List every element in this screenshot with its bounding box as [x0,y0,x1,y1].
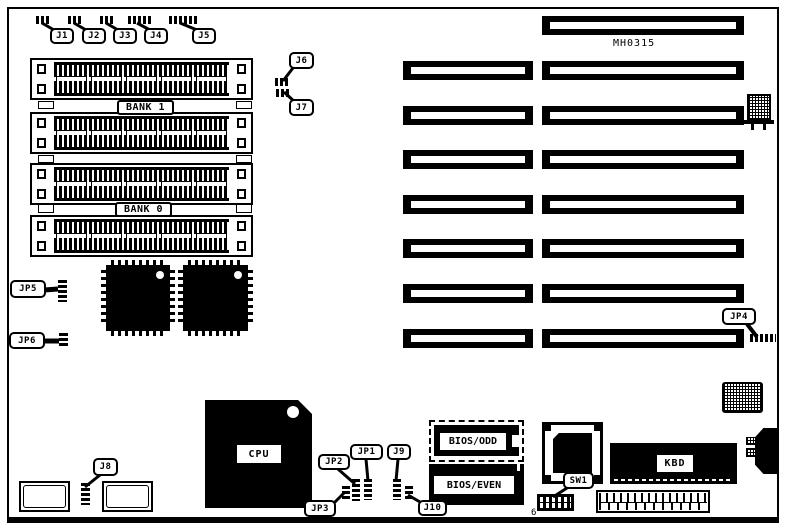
callout-j1: J1 [50,28,74,44]
callout-j8: J8 [93,458,118,476]
callout-jp4: JP4 [722,308,756,325]
jumper-j7-pins [276,89,291,97]
callout-j5-label: J5 [198,31,210,41]
slot-opening [550,156,736,163]
chip-notch [512,435,519,447]
bank1-label-box: BANK 1 [117,100,174,115]
simm-latch [237,84,246,94]
cpu-label: CPU [248,449,269,460]
slot-opening [411,67,525,74]
isa-slot [542,106,744,125]
kbd-chip: KBD [610,443,737,484]
pin1-dot [156,271,164,279]
callout-jp1: JP1 [350,444,383,460]
spare-pad-left [19,481,70,512]
slot-opening [550,22,736,29]
slot-opening [550,335,736,342]
callout-j7-label: J7 [296,103,308,113]
qfp-chip-1 [106,265,170,331]
callout-jp4-label: JP4 [730,312,748,322]
pad-inner-outline [106,485,149,508]
simm-mount-tab [38,204,54,213]
jumper-jp6-pins [59,333,68,348]
header-hole-row [599,502,707,510]
simm-latch [237,118,246,128]
jumper-jp3-pins [342,486,350,501]
switch-row [540,503,571,508]
header-pad-row [599,493,707,502]
simm-mount-tab [236,155,252,163]
isa-slot [542,239,744,258]
simm-mount-tab [38,155,54,163]
isa-slot [542,195,744,214]
slot-opening [411,112,525,119]
isa-slot [542,329,744,348]
callout-j2-label: J2 [88,31,100,41]
socket-corner [544,475,551,482]
qfp-pins-bottom [188,331,243,336]
bios-even-label: BIOS/EVEN [447,480,501,491]
jumper-j4-pins [128,16,153,24]
slot-opening [411,201,525,208]
bios-odd-socket: BIOS/ODD [429,420,524,462]
qfp-pins-right [248,270,253,326]
simm-latch [37,241,46,251]
slot-opening [550,112,736,119]
callout-j6-label: J6 [296,56,308,66]
simm-latch [237,241,246,251]
jumper-jp1-pins [364,479,372,500]
callout-jp2: JP2 [318,454,350,470]
callout-j6: J6 [289,52,314,69]
callout-j7: J7 [289,99,314,116]
slot-opening [411,245,525,252]
qfp-pins-top [111,260,165,265]
simm-mount-tab [38,101,54,109]
motherboard-diagram: J1 J2 J3 J4 J5 J6 J7 [0,0,791,532]
callout-j5: J5 [192,28,216,44]
simm-socket-1 [30,58,253,100]
slot-opening [411,156,525,163]
qfp-chip-2 [183,265,248,331]
bios-odd-label: BIOS/ODD [449,436,497,447]
callout-j10: J10 [418,500,447,516]
simm-mount-tab [236,101,252,109]
isa-slot-extension [403,150,533,169]
isa-slot [542,16,744,35]
callout-j9: J9 [387,444,411,460]
callout-jp3: JP3 [304,500,336,517]
callout-jp6: JP6 [9,332,45,349]
simm-contacts [54,219,229,234]
spare-pad-right [102,481,153,512]
qfp-pins-bottom [111,331,165,336]
simm-latch [237,138,246,148]
jumper-j3-pins [100,16,113,24]
pad-inner-outline [23,485,66,508]
qfp-pins-left [178,270,183,326]
jumper-j5-pins [169,16,199,24]
cpu-label-plate: CPU [237,445,281,463]
cpu-chip: CPU [205,400,312,508]
simm-mount-tab [236,204,252,213]
jumper-j2-pins [68,16,81,24]
isa-slot [542,150,744,169]
simm-latch [37,169,46,179]
simm-contacts [54,238,229,253]
callout-j1-label: J1 [56,31,68,41]
simm-contacts [54,135,229,150]
socket-corner [544,424,551,431]
callout-sw1: SW1 [563,472,594,489]
pin1-dot [287,406,299,418]
simm-latch [237,189,246,199]
slot-opening [550,201,736,208]
simm-latch [37,84,46,94]
keyboard-din-connector [755,428,779,474]
sw1-position-count: 6 [531,508,537,518]
simm-contacts [54,167,229,182]
plcc-chip [553,433,592,473]
isa-slot-extension [403,106,533,125]
simm-contacts [54,116,229,131]
pin1-dot [234,271,242,279]
crystal-base [744,120,774,124]
bios-even-label-plate: BIOS/EVEN [434,476,514,494]
kbd-label: KBD [664,458,685,469]
simm-socket-3 [30,163,253,205]
callout-jp1-label: JP1 [358,447,376,457]
simm-latch [37,118,46,128]
simm-latch [37,221,46,231]
din-pad [746,448,756,457]
callout-j4-label: J4 [150,31,162,41]
isa-slot-extension [403,61,533,80]
callout-j10-label: J10 [424,503,442,513]
jumper-j1-pins [36,16,49,24]
din-pad [746,437,756,445]
bios-odd-label-plate: BIOS/ODD [440,433,506,450]
callout-j3: J3 [113,28,137,44]
isa-slot-extension [403,195,533,214]
switch-row [540,497,571,502]
socket-corner [594,424,601,431]
simm-latch [237,169,246,179]
isa-slot-extension [403,329,533,348]
callout-sw1-label: SW1 [570,476,588,486]
jumper-j9-pins [393,479,401,500]
callout-jp5: JP5 [10,280,46,298]
simm-contacts [54,186,229,201]
bios-even-chip: BIOS/EVEN [429,464,524,505]
callout-jp5-label: JP5 [19,284,37,294]
callout-jp2-label: JP2 [325,457,343,467]
callout-j2: J2 [82,28,106,44]
jumper-jp4-pins [750,334,776,342]
jumper-j8-pins [81,483,90,505]
bios-odd-chip: BIOS/ODD [434,425,519,456]
isa-slot [542,284,744,303]
jumper-jp5-pins [58,280,67,302]
bank1-label: BANK 1 [126,102,165,113]
callout-j9-label: J9 [393,447,405,457]
slot-opening [550,67,736,74]
callout-jp6-label: JP6 [18,336,36,346]
slot-opening [550,290,736,297]
part-number: MH0315 [613,38,655,49]
chip-pin-row [614,479,733,481]
crystal-oscillator-icon [747,94,771,121]
jumper-j6-pins [275,78,290,86]
bank0-label: BANK 0 [124,204,163,215]
slot-opening [550,245,736,252]
simm-socket-2 [30,112,253,154]
slot-opening [411,335,525,342]
dip-switch-sw1 [537,494,574,511]
kbd-label-plate: KBD [657,455,693,472]
slot-opening [411,290,525,297]
simm-latch [37,189,46,199]
bank0-label-box: BANK 0 [115,202,172,217]
chip-notch [517,464,520,471]
isa-slot [542,61,744,80]
callout-jp3-label: JP3 [311,504,329,514]
simm-contacts [54,62,229,77]
simm-contacts [54,81,229,96]
jumper-jp2-pins [352,479,360,501]
qfp-pins-left [101,270,106,326]
simm-socket-4 [30,215,253,257]
crystal-leg [751,124,754,130]
simm-latch [237,221,246,231]
clock-oscillator-icon [722,382,763,413]
callout-j8-label: J8 [100,462,112,472]
isa-slot-extension [403,284,533,303]
simm-latch [37,64,46,74]
qfp-pins-top [188,260,243,265]
simm-latch [37,138,46,148]
callout-j4: J4 [144,28,168,44]
simm-latch [237,64,246,74]
qfp-pins-right [170,270,175,326]
callout-j3-label: J3 [119,31,131,41]
jumper-j10-pins [405,486,413,500]
isa-slot-extension [403,239,533,258]
crystal-leg [763,124,766,130]
kbd-pin-header [596,490,710,513]
socket-corner [594,475,601,482]
